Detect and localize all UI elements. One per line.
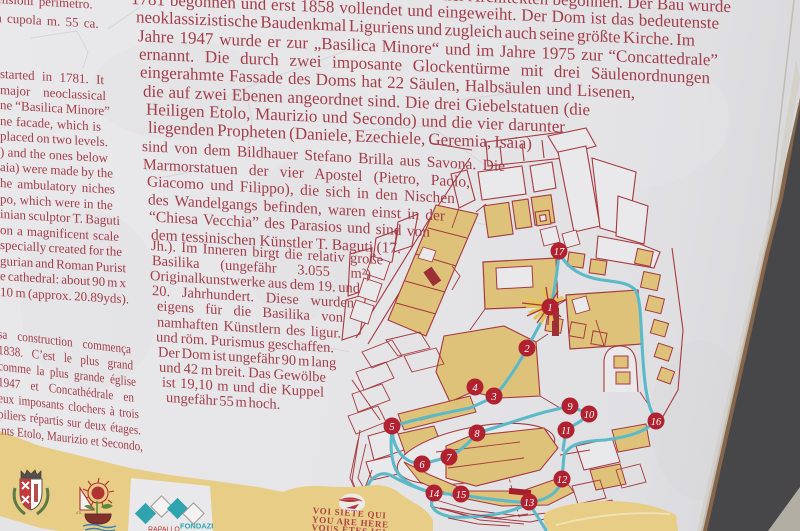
svg-text:ATL: ATL	[76, 511, 82, 515]
svg-text:7: 7	[446, 453, 452, 464]
svg-text:12: 12	[557, 475, 568, 486]
svg-text:17: 17	[554, 247, 565, 258]
svg-text:11: 11	[561, 426, 571, 437]
svg-text:16: 16	[651, 417, 662, 428]
svg-text:6: 6	[419, 460, 425, 471]
svg-text:2: 2	[524, 344, 530, 355]
svg-text:1: 1	[547, 303, 552, 314]
svg-text:FONDAZI: FONDAZI	[180, 522, 213, 531]
svg-text:5: 5	[389, 422, 394, 433]
svg-text:9: 9	[567, 402, 573, 413]
svg-text:3: 3	[490, 392, 496, 403]
svg-text:RAPALLO: RAPALLO	[148, 527, 180, 531]
svg-text:4: 4	[472, 383, 478, 394]
svg-text:10: 10	[584, 410, 595, 421]
svg-text:8: 8	[474, 429, 480, 440]
svg-text:13: 13	[524, 498, 535, 509]
svg-text:15: 15	[456, 490, 467, 501]
svg-text:14: 14	[429, 489, 440, 500]
